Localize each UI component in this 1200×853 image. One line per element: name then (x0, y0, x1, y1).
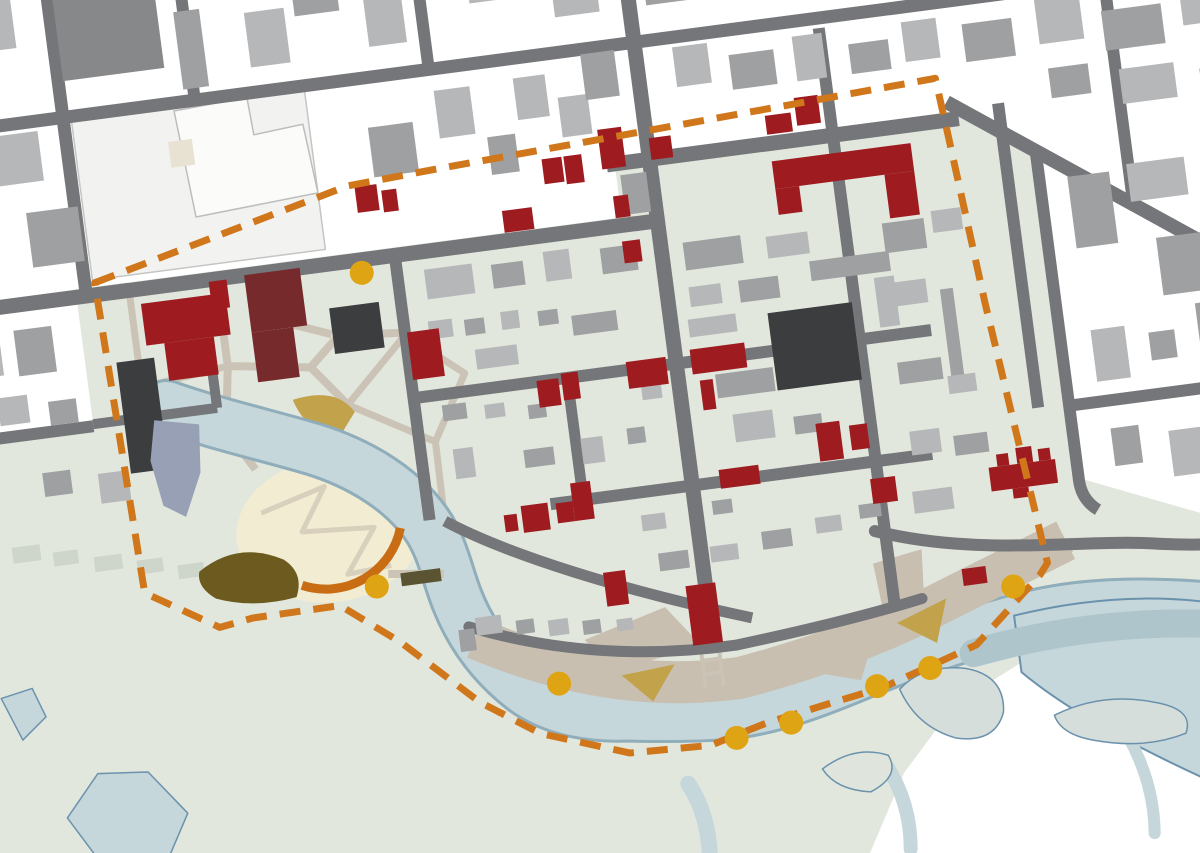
building (487, 134, 520, 175)
building (909, 428, 942, 456)
building (732, 409, 775, 442)
building (537, 309, 559, 326)
building (1148, 329, 1177, 360)
building (672, 43, 712, 87)
building (626, 426, 646, 444)
heritage-building (536, 378, 561, 408)
heritage-building (962, 566, 988, 586)
building (1156, 232, 1200, 296)
building (582, 619, 602, 635)
building (26, 206, 85, 267)
building (0, 131, 44, 188)
large-parcel (168, 139, 195, 168)
charcoal-building (767, 302, 861, 390)
building (1101, 3, 1166, 50)
building (931, 207, 964, 233)
heritage-building (561, 372, 581, 401)
heritage-building (381, 189, 399, 213)
building (453, 447, 477, 479)
building (543, 249, 573, 282)
building (815, 514, 843, 533)
building (1126, 157, 1188, 202)
building (434, 86, 476, 138)
building (464, 317, 486, 335)
heritage-building (626, 357, 669, 389)
charcoal-building (329, 302, 385, 354)
heritage-building (541, 157, 564, 184)
building (882, 218, 928, 253)
building (558, 94, 593, 138)
building (688, 283, 722, 307)
heritage-building (502, 207, 535, 233)
building (580, 50, 620, 100)
building (513, 74, 550, 120)
heritage-building (775, 186, 802, 215)
building (424, 263, 476, 299)
heritage-building (849, 423, 870, 450)
heritage-building (996, 453, 1009, 466)
heritage-building (209, 280, 231, 310)
building (1119, 62, 1178, 104)
building (1110, 425, 1143, 466)
building (901, 18, 941, 62)
heritage-building (765, 113, 793, 135)
building (947, 373, 977, 395)
building (858, 502, 882, 519)
building (491, 261, 526, 289)
heritage-building (603, 570, 629, 607)
heritage-building (884, 171, 919, 219)
building (484, 402, 506, 418)
building (13, 326, 57, 377)
heritage-building (504, 514, 519, 533)
building (548, 618, 570, 636)
building (0, 395, 30, 427)
building (580, 436, 605, 465)
building (848, 39, 892, 74)
building (1034, 0, 1084, 44)
building (792, 33, 828, 82)
building (500, 310, 520, 330)
heritage-building (164, 337, 219, 381)
heritage-building (815, 421, 844, 462)
maroon-building (252, 327, 300, 382)
site-plan-map (0, 0, 1200, 853)
building (1048, 63, 1092, 98)
building (368, 122, 419, 177)
building (51, 0, 164, 81)
building (1090, 326, 1130, 382)
building (458, 628, 477, 652)
building (48, 398, 79, 425)
building (42, 470, 73, 497)
heritage-building (622, 239, 643, 263)
heritage-building (870, 476, 898, 504)
building (616, 618, 633, 632)
heritage-building (1038, 448, 1051, 461)
map-canvas (0, 0, 1200, 853)
building (728, 49, 777, 90)
heritage-building (563, 154, 585, 184)
building (961, 18, 1016, 62)
heritage-building (354, 184, 379, 213)
heritage-building (407, 328, 445, 380)
building (244, 8, 291, 68)
maroon-building (244, 268, 307, 333)
building (515, 618, 535, 634)
heritage-building (556, 501, 575, 523)
heritage-building (613, 194, 631, 218)
heritage-building (521, 503, 551, 533)
building (475, 615, 503, 636)
building (712, 499, 734, 515)
building (641, 512, 667, 531)
heritage-building (649, 135, 674, 160)
building (442, 402, 468, 421)
